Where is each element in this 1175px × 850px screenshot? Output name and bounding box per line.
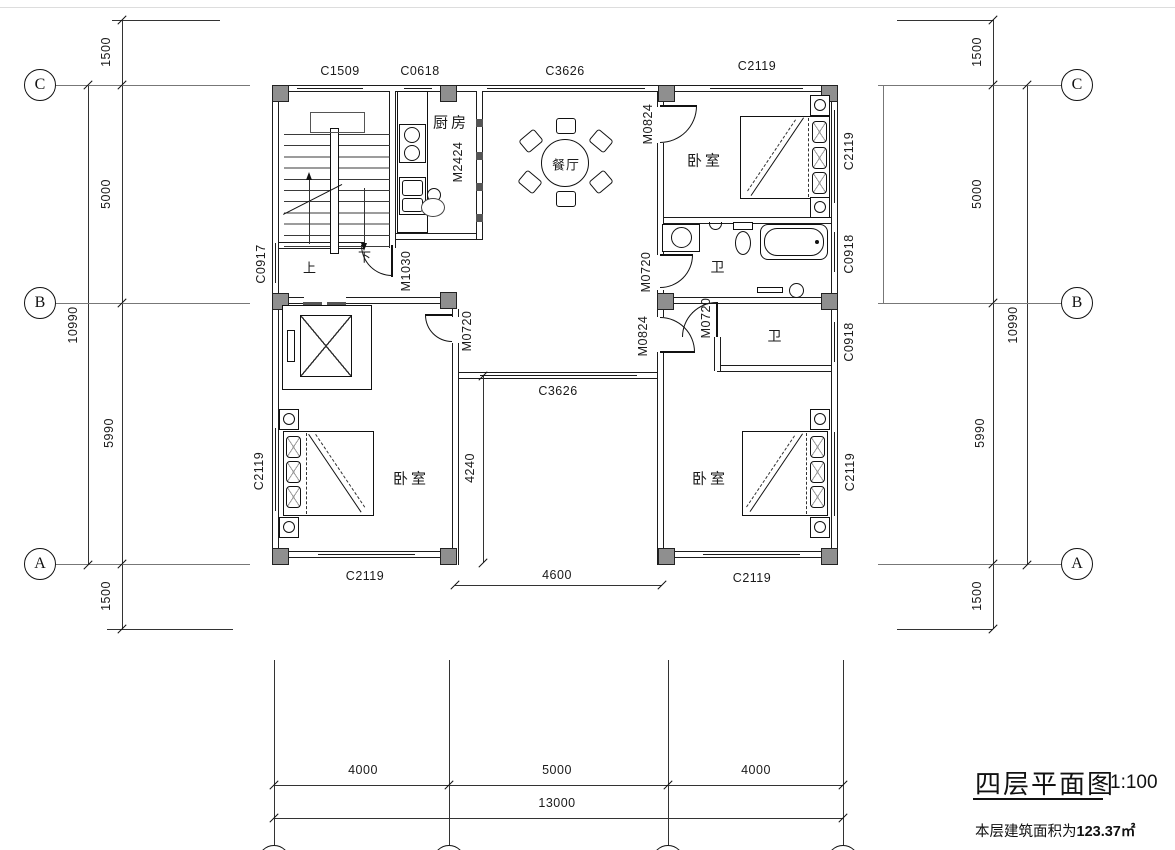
area-note-label: 本层建筑面积为 xyxy=(975,824,1077,840)
title-underline xyxy=(973,798,1103,800)
drawing-scale: 1:100 xyxy=(1110,772,1158,794)
area-note-value: 123.37㎡ xyxy=(1077,824,1136,840)
area-note: 本层建筑面积为123.37㎡ xyxy=(975,820,1135,841)
drawing-title: 四层平面图 xyxy=(975,764,1115,801)
title-block: 四层平面图 1:100 本层建筑面积为123.37㎡ xyxy=(0,0,1175,850)
floor-plan-canvas: C B A C B A C1509 C0618 C3626 C2119 C362… xyxy=(0,0,1175,850)
